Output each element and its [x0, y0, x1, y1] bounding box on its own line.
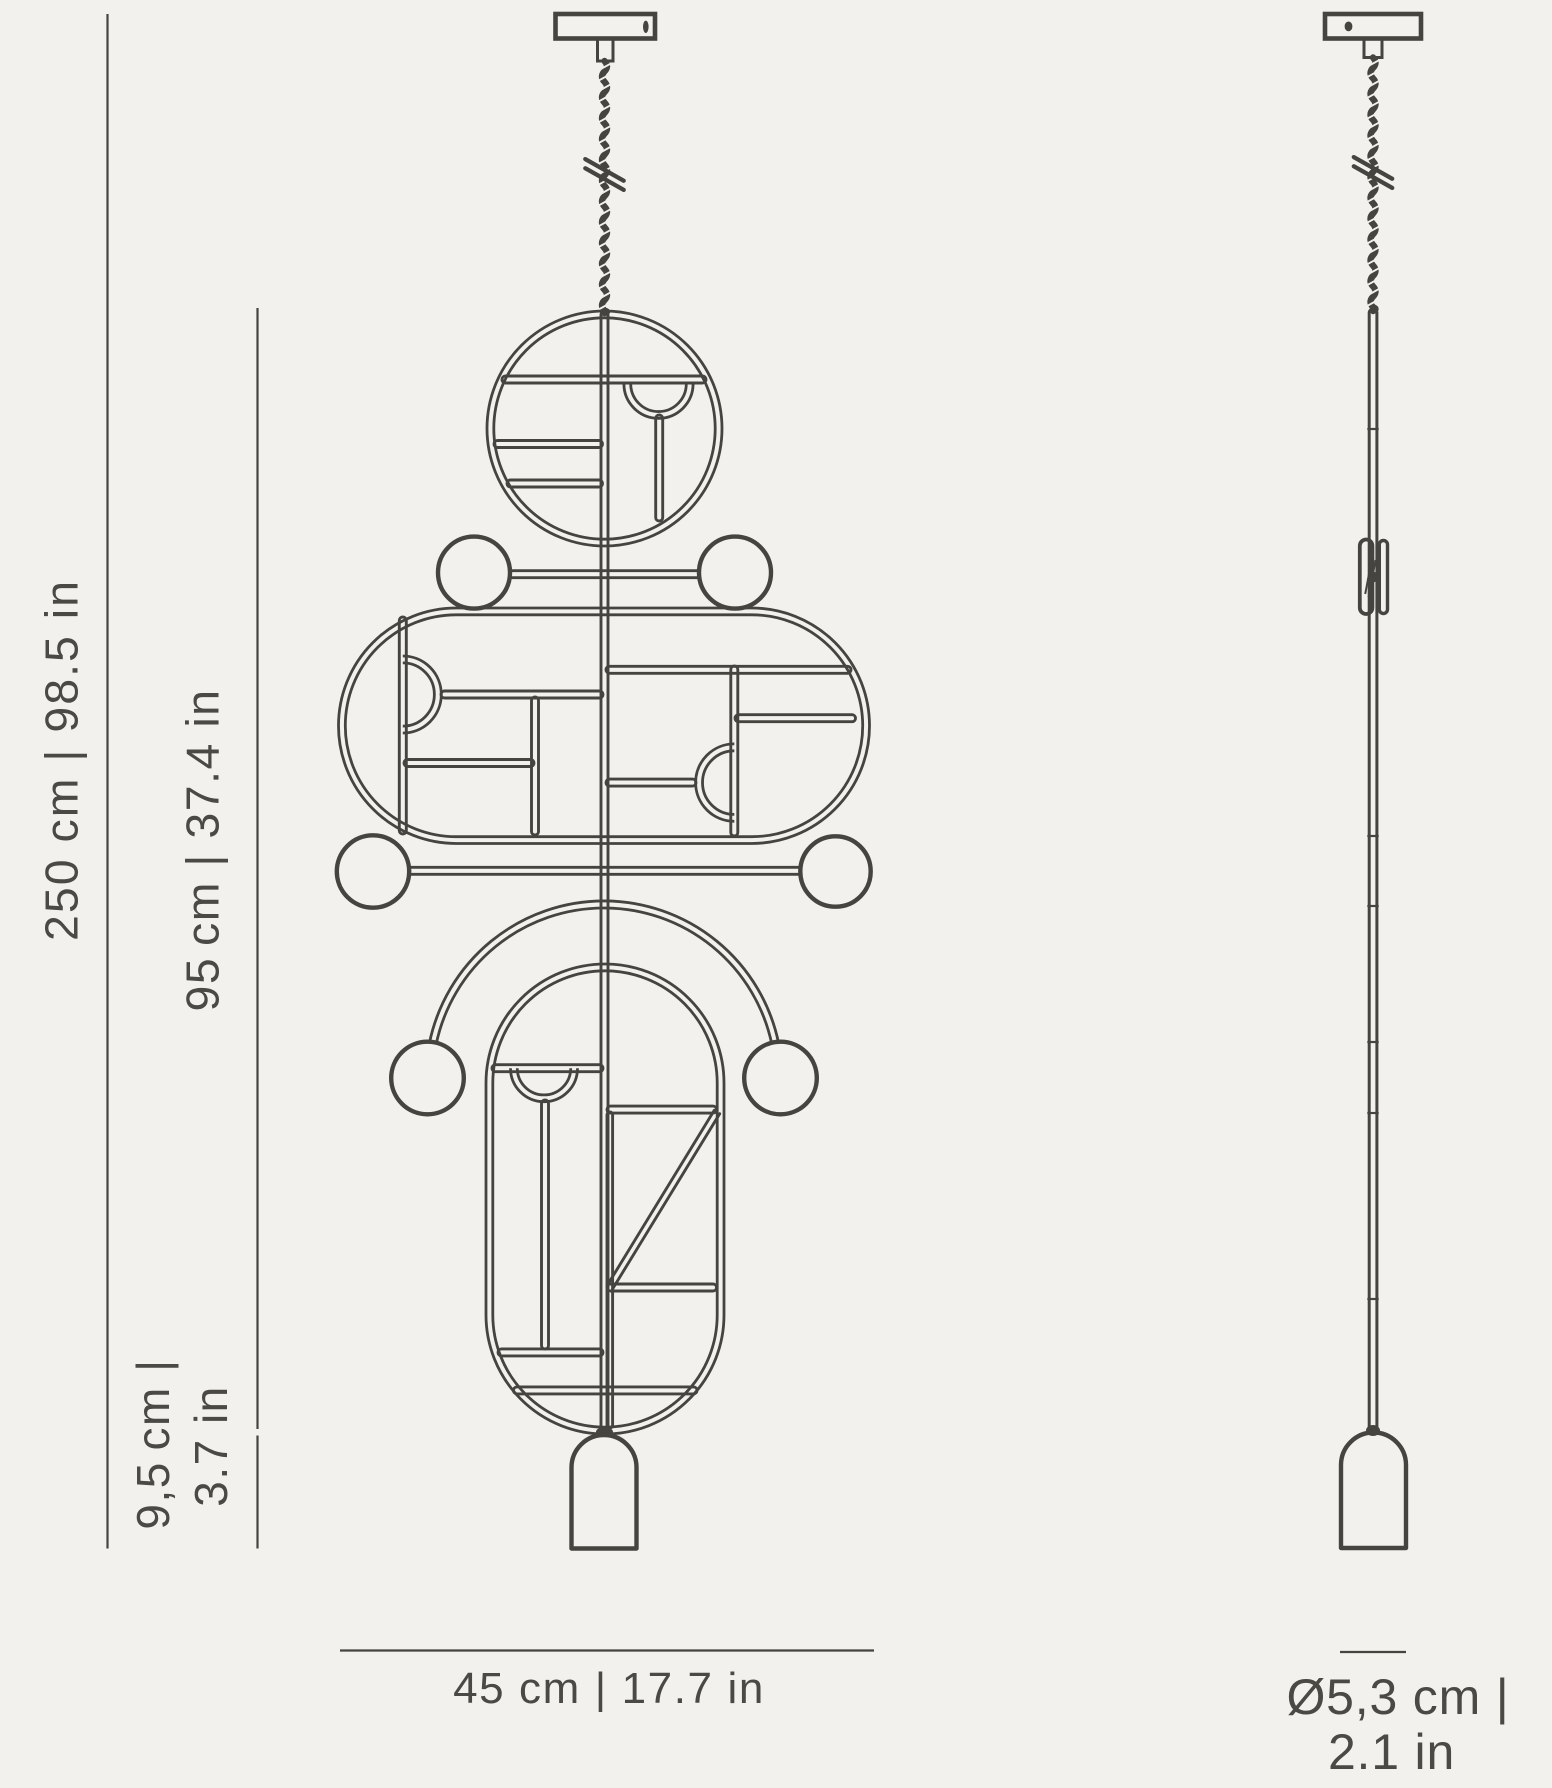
svg-text:3.7 in: 3.7 in [185, 1385, 237, 1507]
svg-text:2.1 in: 2.1 in [1328, 1724, 1455, 1780]
svg-text:45 cm | 17.7 in: 45 cm | 17.7 in [453, 1664, 765, 1713]
svg-text:9,5 cm |: 9,5 cm | [127, 1358, 179, 1529]
svg-text:250 cm | 98.5 in: 250 cm | 98.5 in [35, 579, 87, 941]
svg-text:Ø5,3 cm |: Ø5,3 cm | [1286, 1669, 1509, 1725]
svg-text:95 cm | 37.4 in: 95 cm | 37.4 in [177, 688, 229, 1011]
